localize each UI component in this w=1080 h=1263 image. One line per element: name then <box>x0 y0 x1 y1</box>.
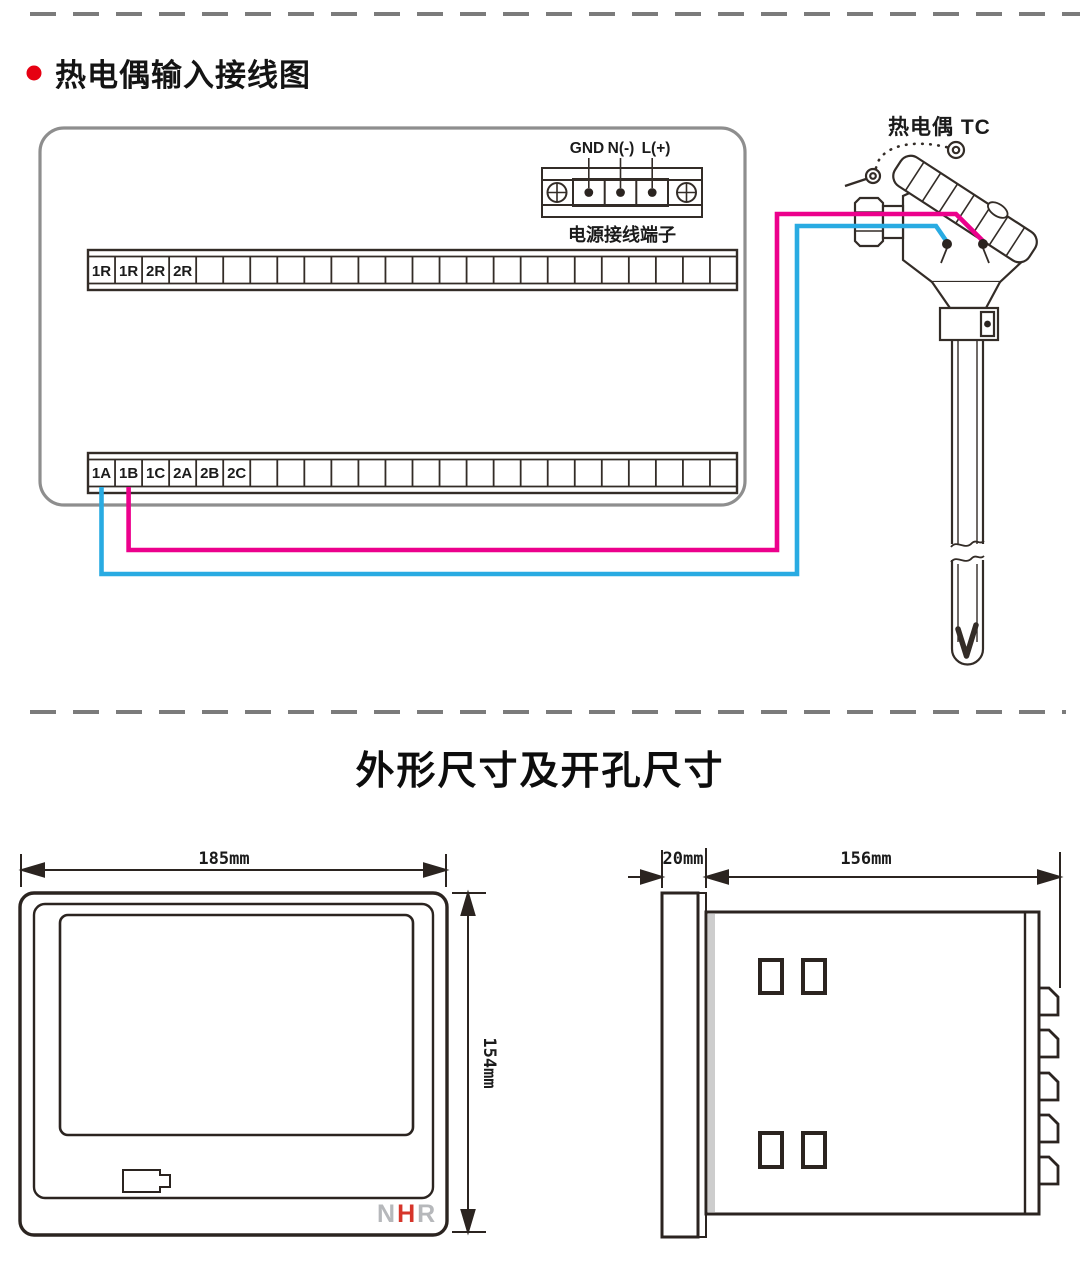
side-front-bezel <box>662 893 698 1237</box>
terminal-label: 2A <box>173 465 192 482</box>
brand-logo: NHR <box>377 1200 436 1228</box>
wire-junction-dot <box>978 239 988 249</box>
arrowhead-right-icon <box>424 864 446 877</box>
screw-icon <box>548 183 567 202</box>
dimensions-section-title: 外形尺寸及开孔尺寸 <box>0 740 1080 796</box>
front-screen <box>60 915 413 1135</box>
terminal-label: 1A <box>92 465 111 482</box>
sensor-label: 热电偶 TC <box>888 115 991 139</box>
dimension-drawings: NHR 185mm 154mm <box>0 830 1080 1263</box>
arrowhead-up-icon <box>462 893 475 915</box>
side-depth-label: 20mm <box>663 849 704 869</box>
usb-port-cover <box>123 1170 170 1192</box>
terminal-label: 1R <box>119 263 138 280</box>
side-view <box>662 893 1058 1237</box>
vent-hole <box>760 960 782 993</box>
wire-junction-dot <box>942 239 952 249</box>
power-label-live: L(+) <box>642 140 671 157</box>
front-height-label: 154mm <box>479 1037 499 1088</box>
front-outer-case <box>20 893 447 1235</box>
power-label-gnd: GND <box>570 140 604 157</box>
probe-break-mark <box>951 541 984 547</box>
terminal-dot-n <box>616 188 625 197</box>
terminal-hooks <box>1039 988 1058 1184</box>
front-view <box>20 893 447 1235</box>
side-body <box>706 912 1039 1214</box>
arrowhead-left-icon <box>706 871 728 884</box>
probe-tip-v-mark <box>958 625 976 656</box>
screw-icon <box>677 183 696 202</box>
terminal-label: 2R <box>173 263 192 280</box>
terminal-label: 1R <box>92 263 111 280</box>
terminal-label: 1C <box>146 465 165 482</box>
terminal-label: 2R <box>146 263 165 280</box>
terminal-dot-gnd <box>584 188 593 197</box>
arrowhead-right-icon <box>641 871 662 884</box>
terminal-label: 1B <box>119 465 138 482</box>
terminal-label: 2B <box>200 465 219 482</box>
hex-fitting <box>855 198 883 246</box>
dashed-separator-middle <box>30 710 1066 714</box>
arrowhead-left-icon <box>22 864 44 877</box>
terminal-dot-l <box>648 188 657 197</box>
terminal-label: 2C <box>227 465 246 482</box>
arrowhead-right-icon <box>1038 871 1060 884</box>
power-terminal-caption: 电源接线端子 <box>568 224 676 245</box>
thermocouple-drawing <box>845 142 1045 665</box>
front-bezel <box>34 904 433 1198</box>
vent-hole <box>803 1133 825 1167</box>
arrowhead-down-icon <box>462 1210 475 1232</box>
front-width-label: 185mm <box>198 849 249 869</box>
side-width-label: 156mm <box>840 849 891 869</box>
vent-hole <box>760 1133 782 1167</box>
vent-hole <box>803 960 825 993</box>
power-label-neutral: N(-) <box>608 140 635 157</box>
thermocouple-wiring-diagram: GND N(-) L(+) 电源接线端子 1R 1R 2R 2R 1A 1B 1… <box>0 0 1080 710</box>
